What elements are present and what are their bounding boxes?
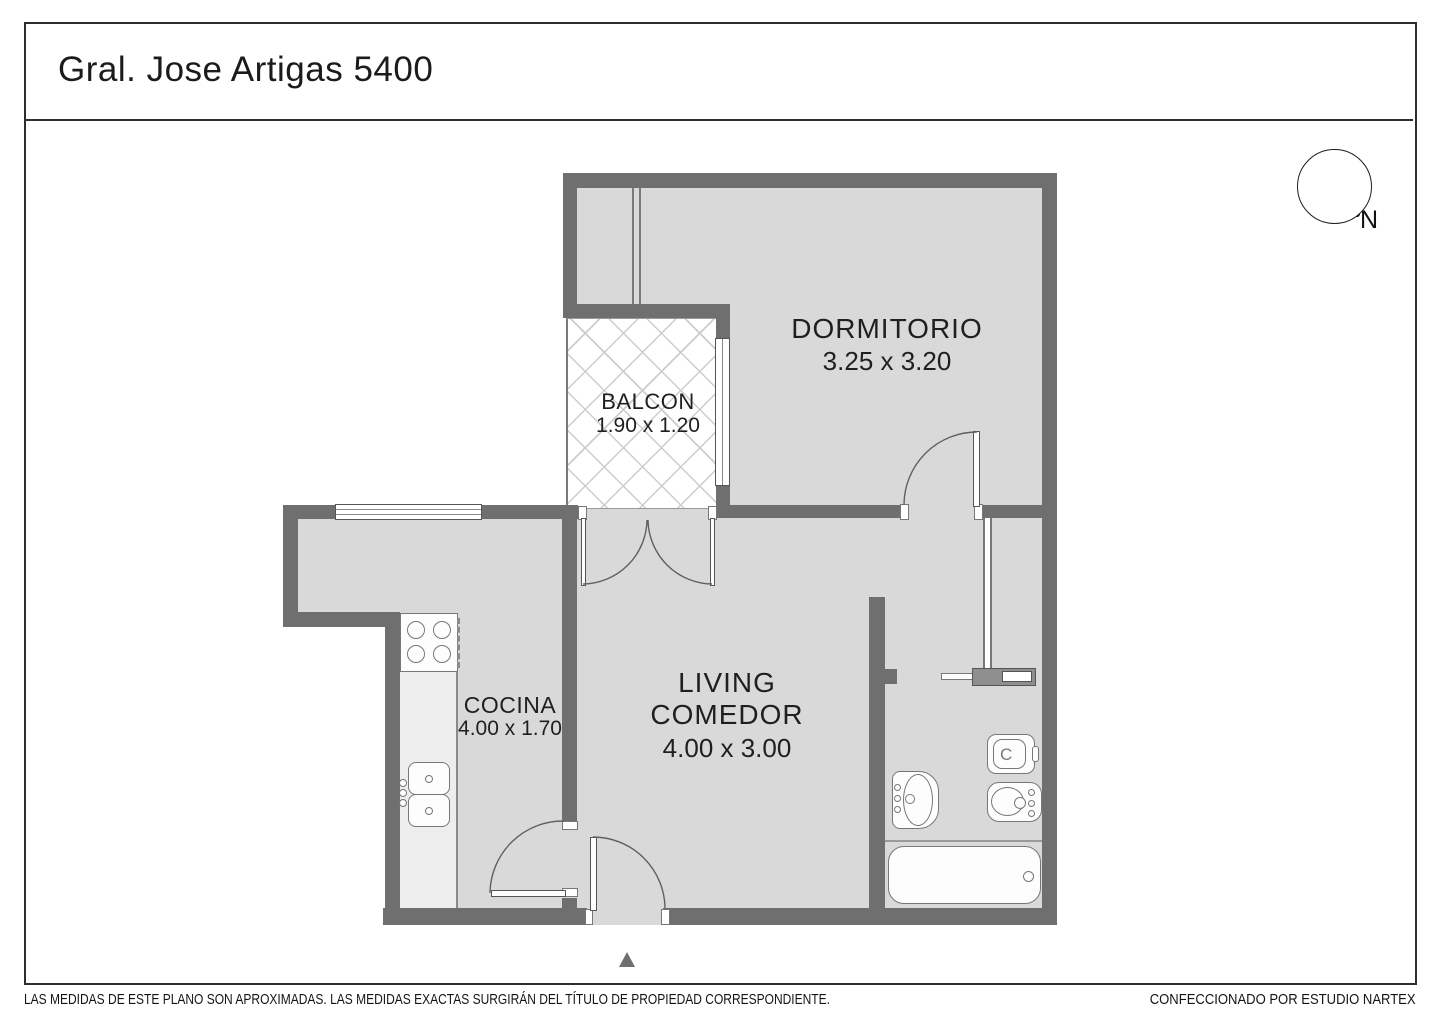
stove-knobs	[457, 618, 460, 668]
wall-balcony-top	[563, 304, 730, 318]
kitchen-faucet-knob	[399, 799, 407, 807]
living-dims: 4.00 x 3.00	[627, 735, 827, 761]
bathtub-zone-line	[885, 840, 1042, 842]
toilet-flush-mark: C	[1000, 746, 1012, 763]
wall-cocina-vertical	[385, 612, 400, 925]
bidet-knob	[1028, 800, 1035, 807]
stove-burner	[433, 645, 451, 663]
stove-burner	[407, 621, 425, 639]
wall-dormitorio-bottom-left	[730, 505, 908, 518]
living-label-line2: COMEDOR	[627, 701, 827, 729]
wall-bottom-right	[663, 908, 1057, 925]
kitchen-sink-drain	[425, 775, 433, 783]
entrance-door-jamb-left	[585, 909, 593, 925]
floor-cocina-upper	[298, 519, 580, 612]
kitchen-faucet-knob	[399, 789, 407, 797]
page-title: Gral. Jose Artigas 5400	[58, 50, 433, 90]
cocina-door-leaf	[491, 890, 566, 897]
wall-divider-stub	[562, 898, 577, 912]
footer-credit: CONFECCIONADO POR ESTUDIO NARTEX	[1150, 991, 1416, 1008]
bidet-knob	[1028, 810, 1035, 817]
stove-burner	[433, 621, 451, 639]
cocina-window	[335, 504, 482, 520]
wall-bathroom-doorstop	[885, 669, 897, 684]
cocina-door-jamb-top	[562, 821, 578, 830]
dormitorio-door-jamb-left	[900, 504, 909, 520]
living-label-line1: LIVING	[627, 669, 827, 697]
dormitorio-dims: 3.25 x 3.20	[737, 348, 1037, 374]
entrance-door-jamb-right	[661, 909, 670, 925]
bathtub-drain	[1023, 871, 1034, 882]
dormitorio-partition-line-right	[639, 188, 641, 304]
bidet-knob	[1028, 789, 1035, 796]
stove	[400, 613, 458, 672]
kitchen-faucet-knob	[399, 779, 407, 787]
dormitorio-door-leaf	[973, 431, 980, 507]
wall-left-upper	[563, 173, 577, 318]
bathroom-knob	[894, 795, 901, 802]
entrance-door-leaf	[590, 837, 597, 911]
bidet-faucet	[1014, 797, 1026, 809]
sliding-door-handle	[1002, 671, 1032, 682]
floor-plan-page: { "title": "Gral. Jose Artigas 5400", "c…	[0, 0, 1440, 1018]
balcon-dims: 1.90 x 1.20	[573, 415, 723, 436]
bathroom-knob	[894, 784, 901, 791]
compass-north-label: N	[1360, 206, 1378, 235]
bathtub	[888, 846, 1041, 904]
cocina-dims: 4.00 x 1.70	[435, 718, 585, 739]
balcon-label: BALCON	[573, 391, 723, 413]
wall-bottom-left	[383, 908, 587, 925]
wall-balcony-right-upper	[716, 318, 730, 340]
wall-cocina-bottom-step	[283, 612, 400, 627]
wall-bathroom-left	[869, 597, 885, 912]
entrance-arrow-icon	[619, 952, 635, 967]
cocina-label: COCINA	[435, 694, 585, 717]
toilet-tank-knob	[1032, 746, 1039, 762]
wall-dormitorio-bottom-right	[982, 505, 1042, 518]
living-bath-partition	[983, 518, 992, 668]
dormitorio-partition-line-left	[632, 188, 634, 304]
floor-entrance-threshold	[587, 908, 663, 925]
bathroom-faucet-dot	[905, 794, 915, 804]
wall-cocina-left	[283, 505, 298, 612]
balcony-door-leaf-right	[710, 518, 715, 586]
stove-burner	[407, 645, 425, 663]
wall-cocina-living-divider	[562, 505, 577, 823]
floor-dormitorio-upper	[577, 188, 1042, 304]
wall-right	[1042, 173, 1057, 925]
balcony-door-leaf-left	[581, 518, 586, 586]
wall-top	[563, 173, 1057, 188]
dormitorio-label: DORMITORIO	[737, 315, 1037, 343]
bathroom-knob	[894, 806, 901, 813]
footer-disclaimer: LAS MEDIDAS DE ESTE PLANO SON APROXIMADA…	[24, 991, 830, 1008]
wall-balcony-right-lower	[716, 483, 730, 518]
kitchen-sink-drain	[425, 807, 433, 815]
